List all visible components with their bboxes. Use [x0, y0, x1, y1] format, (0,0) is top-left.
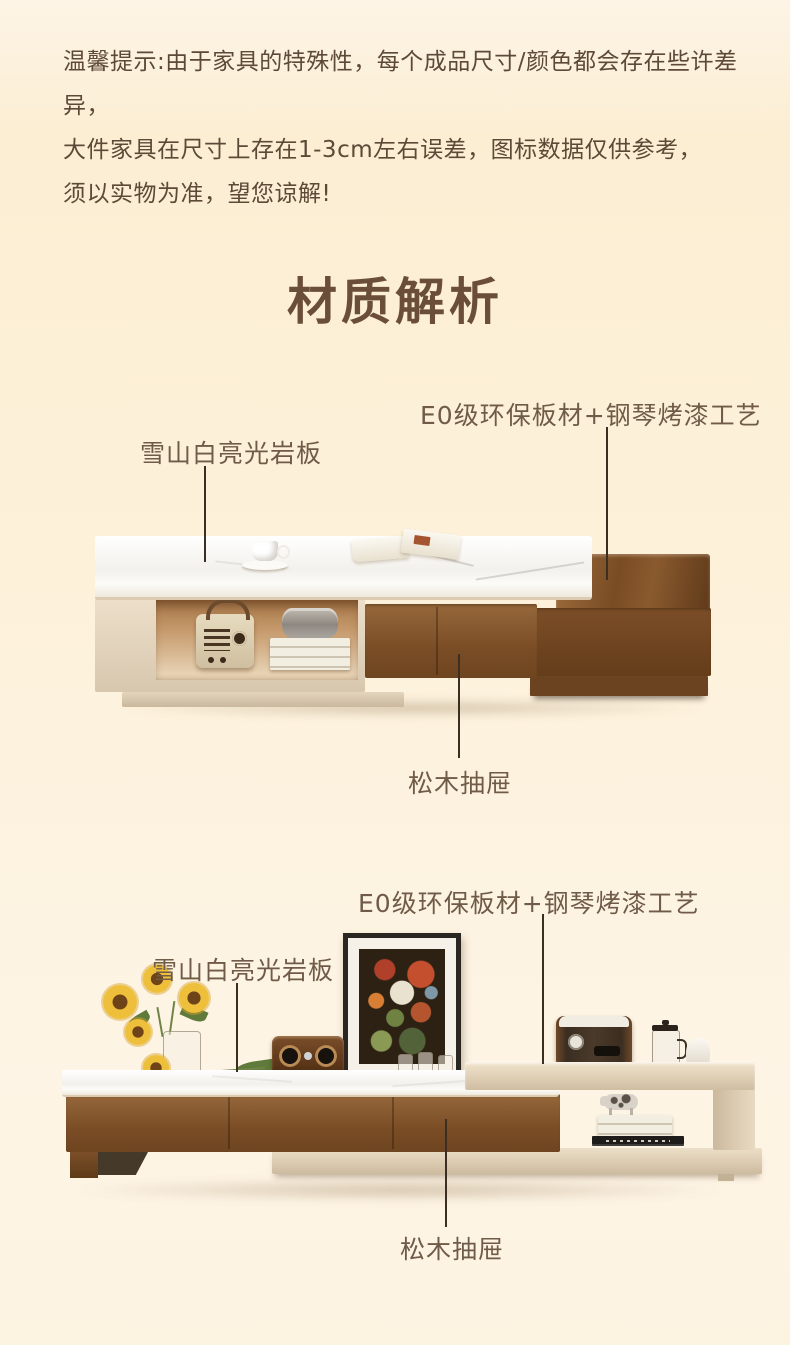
projector-top [559, 1016, 629, 1027]
marble-vein [212, 1075, 292, 1083]
drawer-divider [228, 1097, 230, 1149]
press-knob [662, 1020, 669, 1025]
coffee-cup [252, 541, 278, 561]
label-slate-top-2: 雪山白亮光岩板 [152, 951, 334, 987]
radio-button [208, 657, 214, 663]
radio-button [220, 657, 226, 663]
black-book-spine [592, 1136, 684, 1146]
coffee-table-extension-cabinet [533, 608, 711, 676]
radio-knob [232, 631, 247, 646]
coffee-table-plinth [122, 692, 404, 707]
projector-gauge [568, 1034, 584, 1050]
label-eco-board-1: E0级环保板材+钢琴烤漆工艺 [420, 396, 762, 432]
product-detail-page: 温馨提示:由于家具的特殊性，每个成品尺寸/颜色都会存在些许差异， 大件家具在尺寸… [0, 0, 790, 1345]
leader-line-eco-board-1 [606, 427, 608, 580]
book-right-page [401, 529, 461, 560]
speaker-knob [304, 1052, 312, 1060]
flower-stem [169, 1001, 176, 1035]
label-slate-top-1: 雪山白亮光岩板 [140, 434, 322, 470]
book-spine-text-marks [606, 1140, 670, 1142]
sunflower [103, 985, 137, 1019]
leader-line-slate-top-2 [236, 983, 238, 1072]
tv-stand-extension-side [713, 1088, 755, 1150]
drawer-divider [436, 607, 438, 675]
tv-stand-extension-top [465, 1062, 755, 1090]
radio-handle [206, 599, 250, 620]
tv-stand-leg [70, 1152, 98, 1178]
leader-line-pine-drawer-2 [445, 1119, 447, 1227]
projector-lens [594, 1046, 620, 1056]
dog-figurine-leg [609, 1108, 612, 1115]
speaker-woofer [279, 1045, 301, 1067]
coffee-table-extension-base [530, 676, 708, 696]
shelf-books [270, 638, 350, 670]
coffee-saucer [242, 560, 288, 570]
stacked-books [598, 1115, 672, 1136]
label-pine-drawer-1: 松木抽屉 [408, 764, 512, 800]
marble-vein [476, 561, 585, 580]
leader-line-slate-top-1 [204, 466, 206, 562]
coffee-table-drawer [365, 604, 537, 678]
tv-stand-drawer-cabinet [66, 1094, 560, 1152]
label-eco-board-2: E0级环保板材+钢琴烤漆工艺 [358, 884, 700, 920]
coffee-cup-handle [277, 545, 290, 559]
retro-radio [196, 614, 254, 668]
dog-figurine-leg [630, 1108, 633, 1115]
sunflower [179, 983, 209, 1013]
label-pine-drawer-2: 松木抽屉 [400, 1230, 504, 1266]
speaker-woofer [315, 1045, 337, 1067]
press-lid [652, 1025, 678, 1031]
shelf-decor-stack [270, 606, 350, 670]
radio-grill [204, 629, 230, 651]
leader-line-pine-drawer-1 [458, 654, 460, 758]
tv-stand-extension-foot [718, 1174, 734, 1181]
grey-pot [282, 608, 338, 638]
coffee-table-marble-top [95, 536, 592, 600]
leader-line-eco-board-2 [542, 914, 544, 1064]
projector [556, 1016, 632, 1068]
sunflower [125, 1019, 151, 1045]
painting-artwork [359, 949, 445, 1064]
shelf-books-and-dog [592, 1092, 684, 1148]
drawer-divider [392, 1097, 394, 1149]
tv-stand-floor-shadow [70, 1178, 730, 1202]
open-book [352, 528, 462, 566]
